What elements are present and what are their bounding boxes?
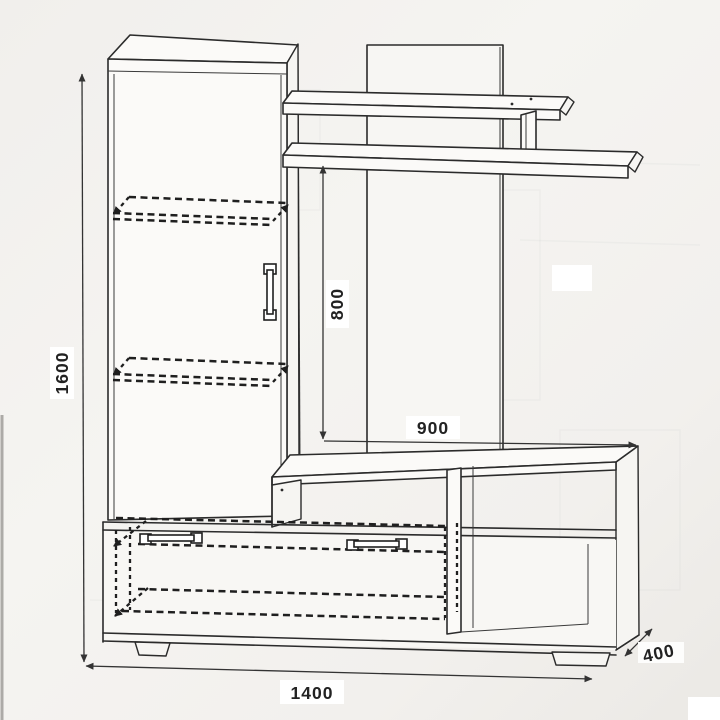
dim-niche-height-800: 800 — [323, 166, 349, 439]
dim-height-1600: 1600 — [50, 74, 84, 662]
dim-width-label: 1400 — [291, 683, 334, 703]
niche-left-side — [272, 477, 301, 527]
tall-cabinet — [108, 35, 299, 520]
dim-niche-width-label: 900 — [417, 418, 449, 438]
foot-left — [135, 642, 170, 656]
base-right-side — [616, 446, 639, 650]
wall-shelf-lower — [283, 143, 643, 178]
dim-width-1400: 1400 — [86, 666, 592, 704]
dim-height-label: 1600 — [52, 352, 72, 395]
cabinet-top-panel — [108, 35, 298, 63]
furniture-diagram: 1600 800 900 1400 400 — [0, 0, 720, 720]
scanned-drawing-page: 1600 800 900 1400 400 — [0, 0, 720, 720]
screw-dot — [530, 98, 533, 101]
cabinet-front — [108, 59, 287, 520]
dim-niche-height-label: 800 — [327, 288, 347, 320]
foot-right — [552, 652, 610, 666]
screw-dot — [511, 103, 514, 106]
